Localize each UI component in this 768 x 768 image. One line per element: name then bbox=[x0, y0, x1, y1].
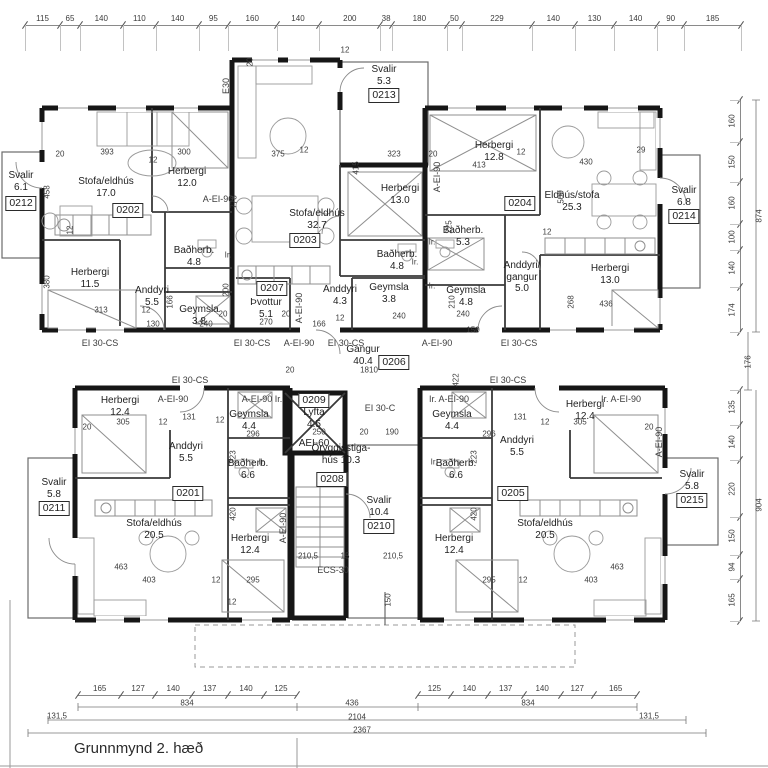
dimension-mark bbox=[730, 579, 740, 580]
annotation-text: 12 bbox=[66, 226, 75, 235]
annotation-text: 223 bbox=[470, 450, 479, 463]
annotation-text: 375 bbox=[271, 150, 284, 159]
room-label-herbergi2-0202: Herbergi11.5 bbox=[71, 267, 109, 290]
dimension-value: 160 bbox=[246, 14, 259, 23]
annotation-text: 131 bbox=[513, 413, 526, 422]
annotation-text: A-EI-90 bbox=[422, 338, 453, 348]
dimension-value: 165 bbox=[728, 594, 737, 607]
unit-number-0210: 0210 bbox=[363, 519, 394, 534]
dimension-value: 150 bbox=[728, 155, 737, 168]
annotation-text: 323 bbox=[387, 150, 400, 159]
annotation-text: 300 bbox=[177, 148, 190, 157]
annotation-text: EI 30-CS bbox=[82, 338, 119, 348]
annotation-text: 393 bbox=[100, 148, 113, 157]
dimension-mark bbox=[730, 460, 740, 461]
annotation-text: 131,5 bbox=[639, 712, 659, 721]
dimension-mark bbox=[123, 25, 124, 51]
annotation-text: 20 bbox=[219, 310, 228, 319]
annotation-text: 904 bbox=[755, 498, 764, 511]
dimension-mark bbox=[462, 25, 463, 51]
annotation-text: 463 bbox=[610, 563, 623, 572]
room-label-anddyri-0204: Anddyri/gangur5.0 bbox=[504, 260, 541, 295]
annotation-text: 12 bbox=[212, 576, 221, 585]
dimension-value: 94 bbox=[728, 563, 737, 572]
annotation-text: 12 bbox=[142, 306, 151, 315]
dimension-value: 140 bbox=[167, 684, 180, 693]
annotation-text: 240 bbox=[199, 320, 212, 329]
kitchen-0205 bbox=[520, 500, 637, 516]
dimension-mark bbox=[730, 425, 740, 426]
annotation-text: 225 bbox=[445, 220, 454, 233]
room-label-herbergi2-0201: Herbergi12.4 bbox=[231, 533, 269, 556]
annotation-text: 834 bbox=[180, 699, 193, 708]
room-label-stofa-0205: Stofa/eldhús20.5 bbox=[517, 518, 573, 541]
dimension-value: 140 bbox=[547, 14, 560, 23]
dimension-mark bbox=[319, 25, 320, 51]
annotation-text: Ir. bbox=[225, 251, 232, 260]
dimension-mark bbox=[25, 25, 26, 51]
annotation-text: 413 bbox=[472, 161, 485, 170]
dimension-value: 125 bbox=[428, 684, 441, 693]
annotation-text: Ir. bbox=[412, 258, 419, 267]
dimension-mark bbox=[730, 517, 740, 518]
annotation-text: 296 bbox=[246, 430, 259, 439]
annotation-text: 200 bbox=[222, 283, 231, 296]
room-label-herbergi2-0205: Herbergi12.4 bbox=[435, 533, 473, 556]
floor-plan-drawing: 0202 0203 0204 0201 0205 0206 0207 0208 … bbox=[0, 0, 768, 768]
dimension-mark bbox=[684, 25, 685, 51]
dimension-value: 115 bbox=[36, 14, 49, 23]
annotation-text: 270 bbox=[259, 318, 272, 327]
dimension-value: 140 bbox=[171, 14, 184, 23]
room-label-anddyri-0205: Anddyri5.5 bbox=[500, 435, 534, 458]
wardrobes bbox=[196, 238, 486, 532]
dimension-value: 95 bbox=[209, 14, 218, 23]
unit-number-0204: 0204 bbox=[504, 196, 535, 211]
annotation-text: 305 bbox=[116, 418, 129, 427]
annotation-text: 420 bbox=[229, 507, 238, 520]
dimension-value: 125 bbox=[274, 684, 287, 693]
annotation-text: 380 bbox=[43, 275, 52, 288]
dimension-value: 200 bbox=[343, 14, 356, 23]
dimension-value: 165 bbox=[93, 684, 106, 693]
dimension-value: 220 bbox=[728, 482, 737, 495]
label-svalir-0214: Svalir6.8 bbox=[671, 185, 696, 208]
dimension-value: 137 bbox=[203, 684, 216, 693]
unit-number-0212: 0212 bbox=[5, 196, 36, 211]
dimension-mark bbox=[228, 25, 229, 51]
dimension-mark bbox=[730, 142, 740, 143]
annotation-text: 295 bbox=[246, 576, 259, 585]
annotation-text: 12 bbox=[159, 418, 168, 427]
annotation-text: 166 bbox=[312, 320, 325, 329]
annotation-text: 874 bbox=[755, 209, 764, 222]
dimension-value: 160 bbox=[728, 114, 737, 127]
annotation-text: 166 bbox=[166, 295, 175, 308]
annotation-text: A-EI-90 bbox=[432, 162, 442, 193]
unit-number-0205: 0205 bbox=[497, 486, 528, 501]
dimension-mark bbox=[80, 25, 81, 51]
annotation-text: 210,5 bbox=[298, 552, 318, 561]
dimension-mark bbox=[156, 25, 157, 51]
dimension-mark bbox=[392, 25, 393, 51]
annotation-text: 500 bbox=[557, 190, 566, 203]
annotation-text: 12 bbox=[543, 228, 552, 237]
dimension-mark bbox=[199, 25, 200, 51]
annotation-text: EI 30-CS bbox=[234, 338, 271, 348]
annotation-text: A-EI-90 bbox=[158, 394, 189, 404]
annotation-text: 240 bbox=[456, 310, 469, 319]
dimension-value: 130 bbox=[588, 14, 601, 23]
annotation-text: 150 bbox=[466, 326, 479, 335]
annotation-text: 130 bbox=[146, 320, 159, 329]
annotation-text: 20 bbox=[360, 428, 369, 437]
room-label-stofa-0204: Eldhús/stofa25.3 bbox=[544, 190, 599, 213]
annotation-text: Ir. bbox=[429, 282, 436, 291]
dimension-mark bbox=[60, 25, 61, 51]
unit-number-0202: 0202 bbox=[112, 203, 143, 218]
annotation-text: Ir. bbox=[431, 458, 438, 467]
annotation-text: 12 bbox=[336, 314, 345, 323]
room-label-geymsla-0205: Geymsla4.4 bbox=[432, 409, 471, 432]
room-label-stofa-0203: Stofa/eldhús32.7 bbox=[289, 208, 345, 231]
label-svalir-0215: Svalir5.8 bbox=[679, 469, 704, 492]
annotation-text: 223 bbox=[229, 450, 238, 463]
room-label-herbergi2-0204: Herbergi13.0 bbox=[591, 263, 629, 286]
plan-linework bbox=[0, 0, 768, 768]
annotation-text: 20 bbox=[645, 423, 654, 432]
label-svalir-0212: Svalir6.1 bbox=[8, 170, 33, 193]
dimension-value: 229 bbox=[490, 14, 503, 23]
annotation-text: 2104 bbox=[348, 713, 366, 722]
dimension-mark bbox=[380, 25, 381, 51]
annotation-text: 436 bbox=[345, 699, 358, 708]
dimension-mark bbox=[730, 332, 740, 333]
dimension-mark bbox=[614, 25, 615, 51]
dimension-value: 137 bbox=[499, 684, 512, 693]
unit-number-0211: 0211 bbox=[39, 501, 70, 516]
dimension-value: 140 bbox=[463, 684, 476, 693]
annotation-text: 313 bbox=[94, 306, 107, 315]
unit-number-0215: 0215 bbox=[676, 493, 707, 508]
dimension-mark bbox=[657, 25, 658, 51]
dimension-mark bbox=[25, 25, 741, 26]
dimension-mark bbox=[740, 100, 741, 332]
annotation-text: 20 bbox=[246, 58, 255, 67]
label-svalir-0211: Svalir5.8 bbox=[41, 477, 66, 500]
unit-number-0214: 0214 bbox=[668, 209, 699, 224]
dimension-value: 140 bbox=[239, 684, 252, 693]
annotation-text: Ir. bbox=[429, 238, 436, 247]
dimension-mark bbox=[575, 25, 576, 51]
dimension-value: 127 bbox=[131, 684, 144, 693]
dimension-value: 110 bbox=[133, 14, 146, 23]
annotation-text: 210,5 bbox=[383, 552, 403, 561]
annotation-text: EI 30-CS bbox=[172, 375, 209, 385]
annotation-text: EI 30-CS bbox=[328, 338, 365, 348]
dimension-mark bbox=[730, 287, 740, 288]
dimension-mark bbox=[741, 25, 742, 51]
dimension-mark bbox=[730, 621, 740, 622]
dimension-mark bbox=[730, 390, 740, 391]
dimension-value: 135 bbox=[728, 401, 737, 414]
annotation-text: 2367 bbox=[353, 726, 371, 735]
dimension-value: 160 bbox=[728, 196, 737, 209]
label-lift-rating: AEI-60 bbox=[299, 438, 330, 450]
dimension-value: 50 bbox=[450, 14, 459, 23]
room-label-stofa-0201: Stofa/eldhús20.5 bbox=[126, 518, 182, 541]
door-arcs bbox=[16, 68, 691, 564]
dimension-mark bbox=[730, 182, 740, 183]
annotation-text: 12 bbox=[517, 148, 526, 157]
annotation-text: 20 bbox=[286, 366, 295, 375]
dimension-value: 185 bbox=[706, 14, 719, 23]
annotation-text: 190 bbox=[385, 428, 398, 437]
annotation-text: 463 bbox=[114, 563, 127, 572]
room-label-geymsla-0203: Geymsla3.8 bbox=[369, 282, 408, 305]
dimension-mark bbox=[447, 25, 448, 51]
annotation-text: A-EI-90 bbox=[654, 427, 664, 458]
room-label-stofa-0202: Stofa/eldhús17.0 bbox=[78, 176, 134, 199]
annotation-text: 422 bbox=[452, 373, 461, 386]
dimension-value: 140 bbox=[629, 14, 642, 23]
annotation-text: 12 bbox=[228, 598, 237, 607]
annotation-text: 1810 bbox=[360, 366, 378, 375]
annotation-text: 436 bbox=[599, 300, 612, 309]
label-svalir-0213: Svalir5.3 bbox=[371, 64, 396, 87]
annotation-text: Ir. bbox=[259, 458, 266, 467]
annotation-text: 131,5 bbox=[47, 712, 67, 721]
annotation-text: 296 bbox=[482, 430, 495, 439]
annotation-text: 250 bbox=[312, 428, 325, 437]
annotation-text: 20 bbox=[56, 150, 65, 159]
annotation-text: Ir. A-EI-90 bbox=[429, 394, 469, 404]
unit-number-0207: 0207 bbox=[256, 281, 287, 296]
annotation-text: A-EI-90 bbox=[294, 293, 304, 324]
room-label-anddyri-0203: Anddyri4.3 bbox=[323, 284, 357, 307]
dashed-outline bbox=[195, 625, 575, 667]
dimension-value: 150 bbox=[728, 529, 737, 542]
annotation-text: 834 bbox=[521, 699, 534, 708]
dimension-value: 140 bbox=[95, 14, 108, 23]
annotation-text: 12 bbox=[541, 418, 550, 427]
annotation-text: E30 bbox=[221, 78, 231, 94]
annotation-text: 430 bbox=[579, 158, 592, 167]
annotation-text: 458 bbox=[43, 185, 52, 198]
annotation-text: 15 bbox=[341, 552, 350, 561]
label-svalir-0210: Svalir10.4 bbox=[366, 495, 391, 518]
dimension-value: 174 bbox=[728, 303, 737, 316]
kitchen-0204 bbox=[545, 238, 655, 254]
room-label-herbergi1-0202: Herbergi12.0 bbox=[168, 166, 206, 189]
annotation-text: 305 bbox=[573, 418, 586, 427]
dimension-value: 140 bbox=[728, 262, 737, 275]
dimension-value: 140 bbox=[535, 684, 548, 693]
annotation-text: EI 30-CS bbox=[490, 375, 527, 385]
dimension-mark bbox=[532, 25, 533, 51]
annotation-text: 20 bbox=[83, 423, 92, 432]
dimension-value: 140 bbox=[291, 14, 304, 23]
annotation-text: 12 bbox=[341, 46, 350, 55]
annotation-text: ECS-30 bbox=[317, 565, 349, 575]
annotation-text: 403 bbox=[142, 576, 155, 585]
dimension-mark bbox=[277, 25, 278, 51]
room-label-anddyri-0202: Anddyri5.5 bbox=[135, 285, 169, 308]
unit-number-0208: 0208 bbox=[316, 472, 347, 487]
annotation-text: 12 bbox=[300, 146, 309, 155]
unit-number-0206: 0206 bbox=[378, 355, 409, 370]
annotation-text: 12 bbox=[216, 416, 225, 425]
annotation-text: 131 bbox=[182, 413, 195, 422]
annotation-text: 778 bbox=[230, 195, 239, 208]
annotation-text: 268 bbox=[567, 295, 576, 308]
annotation-text: 420 bbox=[470, 507, 479, 520]
dimension-mark bbox=[730, 224, 740, 225]
dimension-value: 100 bbox=[728, 230, 737, 243]
annotation-text: 295 bbox=[482, 576, 495, 585]
dimension-mark bbox=[730, 555, 740, 556]
dimension-value: 140 bbox=[728, 436, 737, 449]
dimension-value: 38 bbox=[382, 14, 391, 23]
dimension-value: 165 bbox=[609, 684, 622, 693]
room-label-herbergi1-0201: Herbergi12.4 bbox=[101, 395, 139, 418]
annotation-text: 29 bbox=[637, 146, 646, 155]
annotation-text: 12 bbox=[149, 156, 158, 165]
annotation-text: 240 bbox=[392, 312, 405, 321]
annotation-text: 415 bbox=[352, 161, 361, 174]
room-label-badherb-0202: Baðherb.4.8 bbox=[174, 245, 215, 268]
unit-number-0213: 0213 bbox=[368, 88, 399, 103]
annotation-text: Ir. A-EI-90 bbox=[601, 394, 641, 404]
kitchen-0201 bbox=[95, 500, 212, 516]
annotation-text: A-EI-90 bbox=[284, 338, 315, 348]
unit-number-0201: 0201 bbox=[172, 486, 203, 501]
annotation-text: 403 bbox=[584, 576, 597, 585]
annotation-text: 12 bbox=[519, 576, 528, 585]
dimension-value: 90 bbox=[666, 14, 675, 23]
annotation-text: 210 bbox=[448, 295, 457, 308]
unit-number-0209: 0209 bbox=[298, 393, 329, 408]
room-label-anddyri-0201: Anddyri5.5 bbox=[169, 441, 203, 464]
annotation-text: 20 bbox=[282, 310, 291, 319]
annotation-text: 176 bbox=[744, 355, 753, 368]
annotation-text: EI 30-C bbox=[365, 403, 396, 413]
dimension-mark bbox=[730, 250, 740, 251]
drawing-title: Grunnmynd 2. hæð bbox=[74, 740, 203, 757]
unit-number-0203: 0203 bbox=[289, 233, 320, 248]
dimension-value: 65 bbox=[66, 14, 75, 23]
dimension-value: 127 bbox=[571, 684, 584, 693]
annotation-text: 20 bbox=[429, 150, 438, 159]
dimension-mark bbox=[730, 100, 740, 101]
room-label-herbergi-0203: Herbergi13.0 bbox=[381, 183, 419, 206]
annotation-text: A-EI-90 bbox=[278, 513, 288, 544]
dimension-value: 180 bbox=[413, 14, 426, 23]
annotation-text: A-EI-90 Ir. bbox=[242, 394, 283, 404]
annotation-text: EI 30-CS bbox=[501, 338, 538, 348]
annotation-text: 150 bbox=[384, 593, 393, 606]
